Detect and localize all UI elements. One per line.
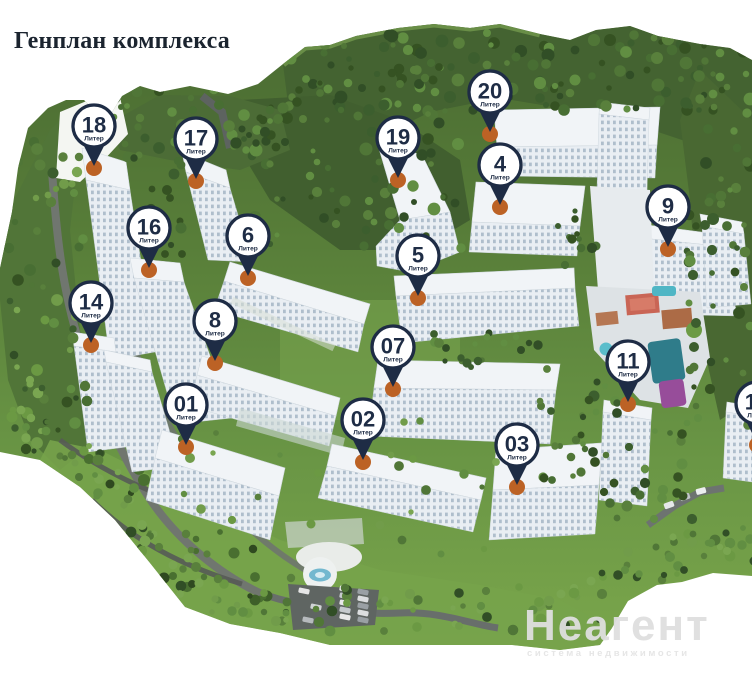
svg-text:8: 8 [209,308,221,333]
svg-text:Литер: Литер [408,266,428,273]
svg-text:02: 02 [351,407,375,432]
svg-text:Литер: Литер [84,136,104,143]
svg-text:Генплан комплекса: Генплан комплекса [14,28,230,54]
svg-text:01: 01 [174,392,198,417]
svg-text:Литер: Литер [490,175,510,182]
svg-text:6: 6 [242,223,254,248]
svg-text:Литер: Литер [388,148,408,155]
svg-text:11: 11 [616,349,639,374]
svg-text:Литер: Литер [747,413,752,420]
svg-text:Литер: Литер [658,217,678,224]
svg-text:5: 5 [412,243,424,268]
svg-text:Неагент: Неагент [524,601,710,650]
svg-text:Литер: Литер [383,357,403,364]
svg-text:Литер: Литер [205,331,225,338]
svg-text:Литер: Литер [139,238,159,245]
svg-text:Литер: Литер [238,246,258,253]
svg-text:10: 10 [745,390,752,415]
svg-text:Литер: Литер [507,455,527,462]
svg-text:Литер: Литер [480,102,500,109]
svg-text:19: 19 [386,125,410,150]
svg-text:14: 14 [79,290,104,315]
svg-text:Литер: Литер [186,149,206,156]
svg-text:17: 17 [184,126,208,151]
svg-text:9: 9 [662,194,674,219]
svg-text:Литер: Литер [176,415,196,422]
svg-text:16: 16 [137,215,161,240]
svg-text:система недвижимости: система недвижимости [527,648,690,659]
svg-text:Литер: Литер [353,430,373,437]
svg-text:Литер: Литер [618,372,638,379]
svg-text:03: 03 [505,432,529,457]
svg-text:Литер: Литер [81,313,101,320]
svg-text:18: 18 [82,113,106,138]
svg-text:20: 20 [478,79,502,104]
svg-text:07: 07 [381,334,405,359]
svg-text:4: 4 [494,152,507,177]
